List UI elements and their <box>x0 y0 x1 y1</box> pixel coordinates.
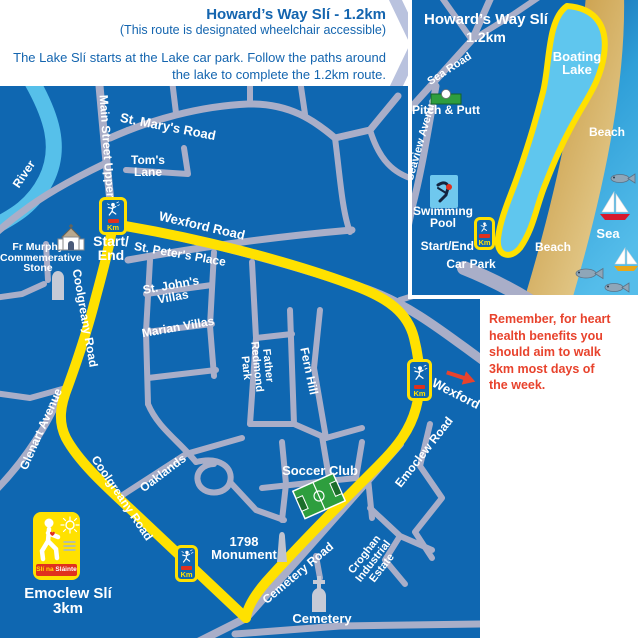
fish-icon <box>572 266 604 281</box>
mini-banner <box>108 219 119 223</box>
boating-lake-label: Boating Lake <box>546 50 608 77</box>
mini-banner <box>181 566 192 570</box>
header: Howard’s Way Slí - 1.2km (This route is … <box>8 6 386 83</box>
soccer-club-label: Soccer Club <box>260 464 380 477</box>
commemorative-stone-icon <box>50 270 66 300</box>
mini-banner <box>479 234 490 237</box>
km-marker-start: Km <box>99 197 127 235</box>
father-redmond-park-label: Father Redmond Park <box>236 333 276 400</box>
route-description: The Lake Slí starts at the Lake car park… <box>8 50 386 83</box>
logo-banner: Slí na Sláinte <box>36 564 77 576</box>
inset-title: Howard’s Way Slí <box>416 12 556 27</box>
inset-distance: 1.2km <box>416 30 556 44</box>
km-marker-inset: Km <box>474 217 495 250</box>
fish-icon <box>608 172 636 185</box>
inset-map: Howard’s Way Slí 1.2km Boating Lake Sea … <box>408 0 638 299</box>
sailboat-yellow-icon <box>612 246 638 274</box>
sailboat-red-icon <box>598 190 634 222</box>
pitch-putt-icon <box>430 88 462 105</box>
walker-icon <box>180 549 194 565</box>
cemetery-label: Cemetery <box>282 612 362 625</box>
church-icon <box>56 224 86 252</box>
sli-na-slainte-logo: Slí na Sláinte <box>33 512 80 580</box>
swimming-pool-label: Swimming Pool <box>408 205 478 229</box>
cemetery-headstone-icon <box>308 576 330 612</box>
beach-top-label: Beach <box>584 126 630 138</box>
start-end-label: Start/ End <box>90 234 132 263</box>
sea-label: Sea <box>588 227 628 240</box>
pitch-putt-label: Pitch & Putt <box>412 104 478 116</box>
beach-bottom-label: Beach <box>528 241 578 253</box>
swimming-pool-icon <box>430 175 458 208</box>
mini-banner <box>414 385 425 389</box>
walking-person-icon <box>33 512 80 564</box>
km-marker-east: Km <box>407 359 432 401</box>
heart-health-reminder: Remember, for heart health benefits you … <box>489 311 611 394</box>
walker-icon <box>105 201 121 218</box>
km-marker-south: Km <box>175 545 198 582</box>
walker-icon <box>412 363 428 384</box>
monument-obelisk-icon <box>275 532 289 562</box>
route-name-label: Emoclew Slí 3km <box>12 586 124 617</box>
fish-icon <box>602 281 630 294</box>
page-title: Howard’s Way Slí - 1.2km <box>8 6 386 23</box>
walker-icon <box>478 221 491 233</box>
inset-start-end-label: Start/End <box>412 240 474 252</box>
page: Howard’s Way Slí - 1.2km (This route is … <box>0 0 638 638</box>
page-subtitle: (This route is designated wheelchair acc… <box>8 23 386 38</box>
car-park-label: Car Park <box>440 258 502 270</box>
toms-lane-label: Tom's Lane <box>124 154 172 178</box>
